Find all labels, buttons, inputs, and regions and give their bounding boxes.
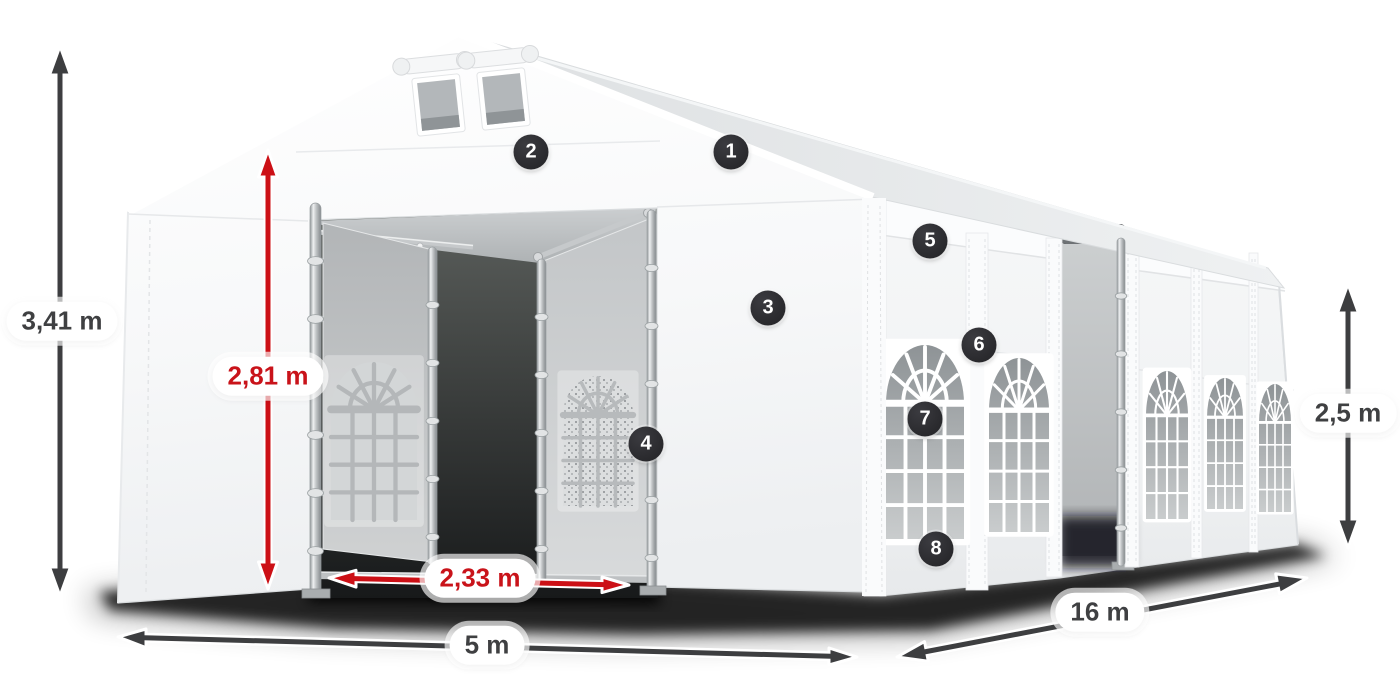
wall-strap	[1125, 246, 1139, 567]
callout-badge-5: 5	[913, 224, 948, 259]
frame-pole	[308, 203, 324, 595]
callout-badge-8: 8	[919, 532, 954, 567]
callout-badge-2: 2	[514, 135, 549, 170]
frame-pole	[426, 247, 439, 565]
dimension-label-entrance-height: 2,81 m	[213, 357, 324, 396]
front-entrance-interior	[309, 200, 658, 598]
side-window	[880, 339, 970, 545]
dimension-label-length: 16 m	[1055, 593, 1144, 632]
callout-badge-3: 3	[751, 291, 786, 326]
dimension-label-side-height: 2,5 m	[1300, 394, 1397, 433]
frame-pole	[1115, 238, 1127, 566]
side-window	[984, 353, 1054, 537]
callout-badge-4: 4	[629, 427, 664, 462]
callout-badge-7: 7	[908, 402, 943, 437]
callout-badge-1: 1	[714, 135, 749, 170]
side-window	[1256, 381, 1293, 514]
callout-badge-6: 6	[962, 328, 997, 363]
corner-post-cover	[862, 198, 886, 596]
side-window	[1143, 368, 1192, 523]
door-flap-window	[324, 355, 424, 527]
side-window	[1204, 375, 1246, 512]
tent-product-diagram: 1 2 3 4 5 6 7 8 3,41 m 2,81 m 2,33 m 5 m…	[0, 0, 1400, 700]
pole-base-plate	[640, 586, 666, 595]
frame-pole	[645, 210, 658, 592]
door-flap-mesh-window	[557, 370, 638, 511]
dimension-label-entrance-width: 2,33 m	[425, 559, 536, 598]
dimension-label-width: 5 m	[450, 626, 525, 665]
wall-strap	[1191, 251, 1202, 558]
tent-illustration	[0, 0, 1400, 700]
pole-base-plate	[302, 589, 330, 598]
dimension-label-total-height: 3,41 m	[7, 302, 118, 341]
frame-pole	[535, 259, 548, 587]
